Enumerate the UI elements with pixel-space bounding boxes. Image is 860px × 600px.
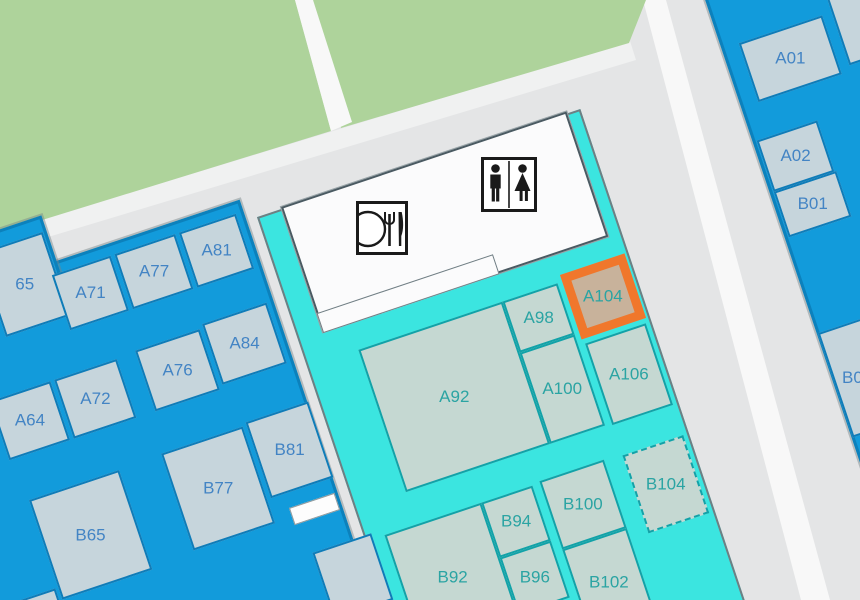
- wc-icon: [481, 157, 537, 212]
- booth-label: B94: [501, 512, 531, 532]
- booth-label: A72: [80, 389, 110, 409]
- booth-label: B92: [437, 568, 467, 588]
- booth-label: A104: [583, 286, 623, 306]
- booth-label: A01: [775, 49, 805, 69]
- booth-label: A77: [139, 262, 169, 282]
- booth-label: A76: [162, 360, 192, 380]
- booth-label: 65: [15, 274, 34, 294]
- booth-label: B02: [842, 368, 860, 388]
- booth-label: A81: [201, 241, 231, 261]
- booth-label: B96: [520, 568, 550, 588]
- booth-label: B77: [203, 479, 233, 499]
- booth-label: A100: [542, 379, 582, 399]
- booth-label: B01: [797, 194, 827, 214]
- booth-label: B104: [646, 474, 686, 494]
- booth-label: B81: [274, 440, 304, 460]
- booth-label: A71: [75, 283, 105, 303]
- exhibition-floor-plan: { "map": { "title": "exhibition-hall-flo…: [0, 0, 860, 600]
- booth-label: B100: [563, 495, 603, 515]
- booth-label: B102: [589, 572, 629, 592]
- restaurant-icon: [356, 201, 408, 255]
- booth-label: A92: [439, 387, 469, 407]
- booth-label: A02: [780, 146, 810, 166]
- booth-label: A98: [523, 308, 553, 328]
- booth-label: B65: [76, 525, 106, 545]
- booth-label: A64: [15, 411, 45, 431]
- booth-label: A106: [609, 364, 649, 384]
- booth-label: A84: [229, 334, 259, 354]
